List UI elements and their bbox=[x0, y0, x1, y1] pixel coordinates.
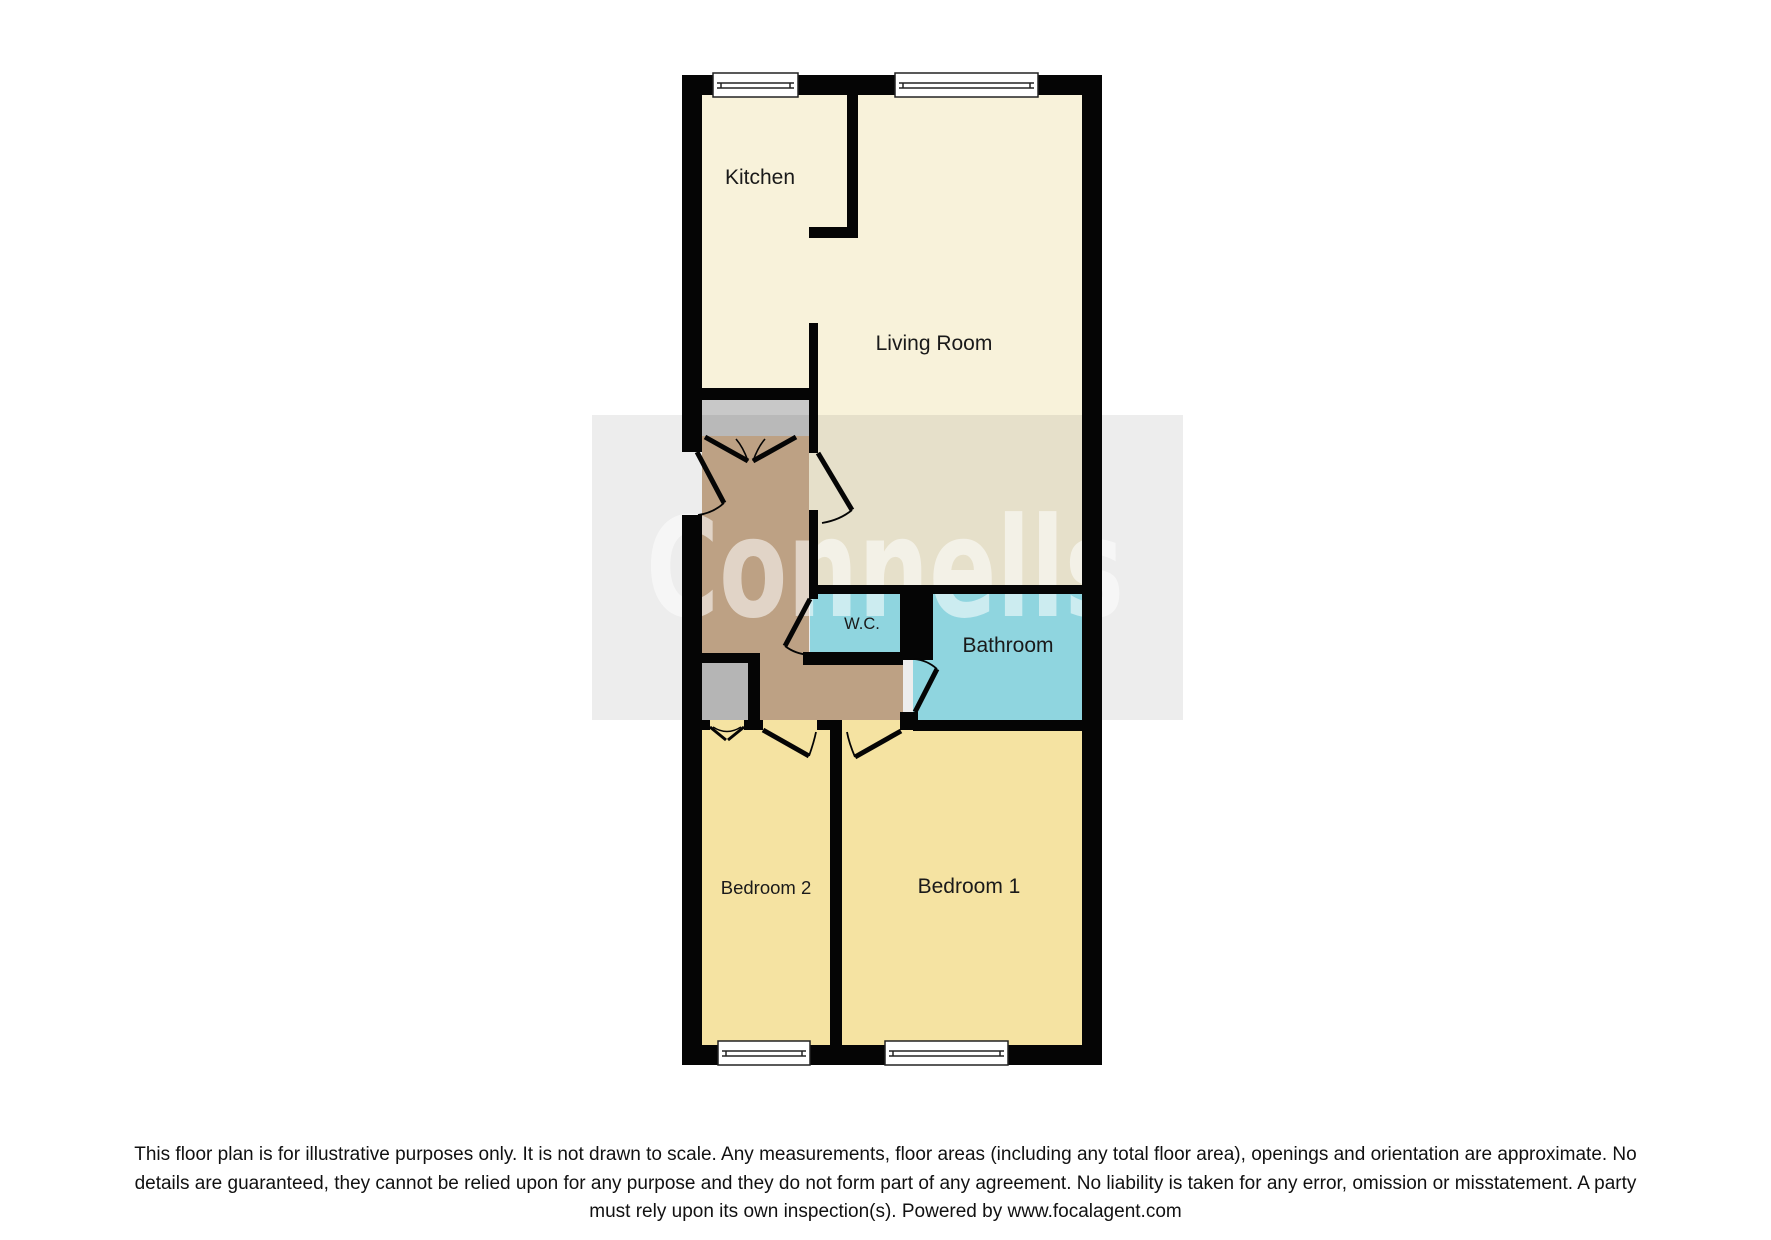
bedroom2-label: Bedroom 2 bbox=[721, 877, 812, 898]
wall-kitchen-divider-upper bbox=[847, 95, 858, 238]
wall-wc-bottom bbox=[803, 652, 903, 665]
wall-hall-bed-b bbox=[744, 720, 763, 730]
wall-bedroom-divider bbox=[830, 730, 842, 1045]
wall-cupboard-right bbox=[748, 653, 760, 720]
wall-kitchen-jog bbox=[809, 227, 858, 238]
wall-bath-bottom bbox=[913, 720, 1082, 731]
bathroom-label: Bathroom bbox=[962, 634, 1053, 657]
disclaimer-line-3: must rely upon its own inspection(s). Po… bbox=[0, 1198, 1771, 1227]
watermark-label: Connells bbox=[646, 488, 1124, 649]
living-room-window bbox=[895, 73, 1038, 97]
bedroom2-window bbox=[718, 1041, 810, 1065]
wall-left-lower bbox=[682, 515, 702, 1065]
wall-wc-right bbox=[900, 594, 933, 660]
wall-hall-bed-a bbox=[702, 720, 710, 730]
wall-kitchen-bottom bbox=[697, 388, 818, 400]
disclaimer-text: This floor plan is for illustrative purp… bbox=[0, 1141, 1771, 1227]
bedroom1-window bbox=[885, 1041, 1008, 1065]
kitchen-window bbox=[713, 73, 798, 97]
wall-right bbox=[1082, 75, 1102, 1065]
disclaimer-line-1: This floor plan is for illustrative purp… bbox=[0, 1141, 1771, 1170]
wall-hall-bed-c bbox=[817, 720, 842, 730]
kitchen-label: Kitchen bbox=[725, 166, 795, 189]
wall-wc-top bbox=[809, 585, 1082, 594]
living-room-label: Living Room bbox=[876, 332, 993, 355]
floor-plan-image: Connells bbox=[0, 0, 1771, 1240]
disclaimer-line-2: details are guaranteed, they cannot be r… bbox=[0, 1170, 1771, 1199]
page: { "watermark": { "text": "Connells" }, "… bbox=[0, 0, 1771, 1240]
bedroom1-label: Bedroom 1 bbox=[918, 875, 1021, 898]
wc-label: W.C. bbox=[844, 615, 880, 633]
